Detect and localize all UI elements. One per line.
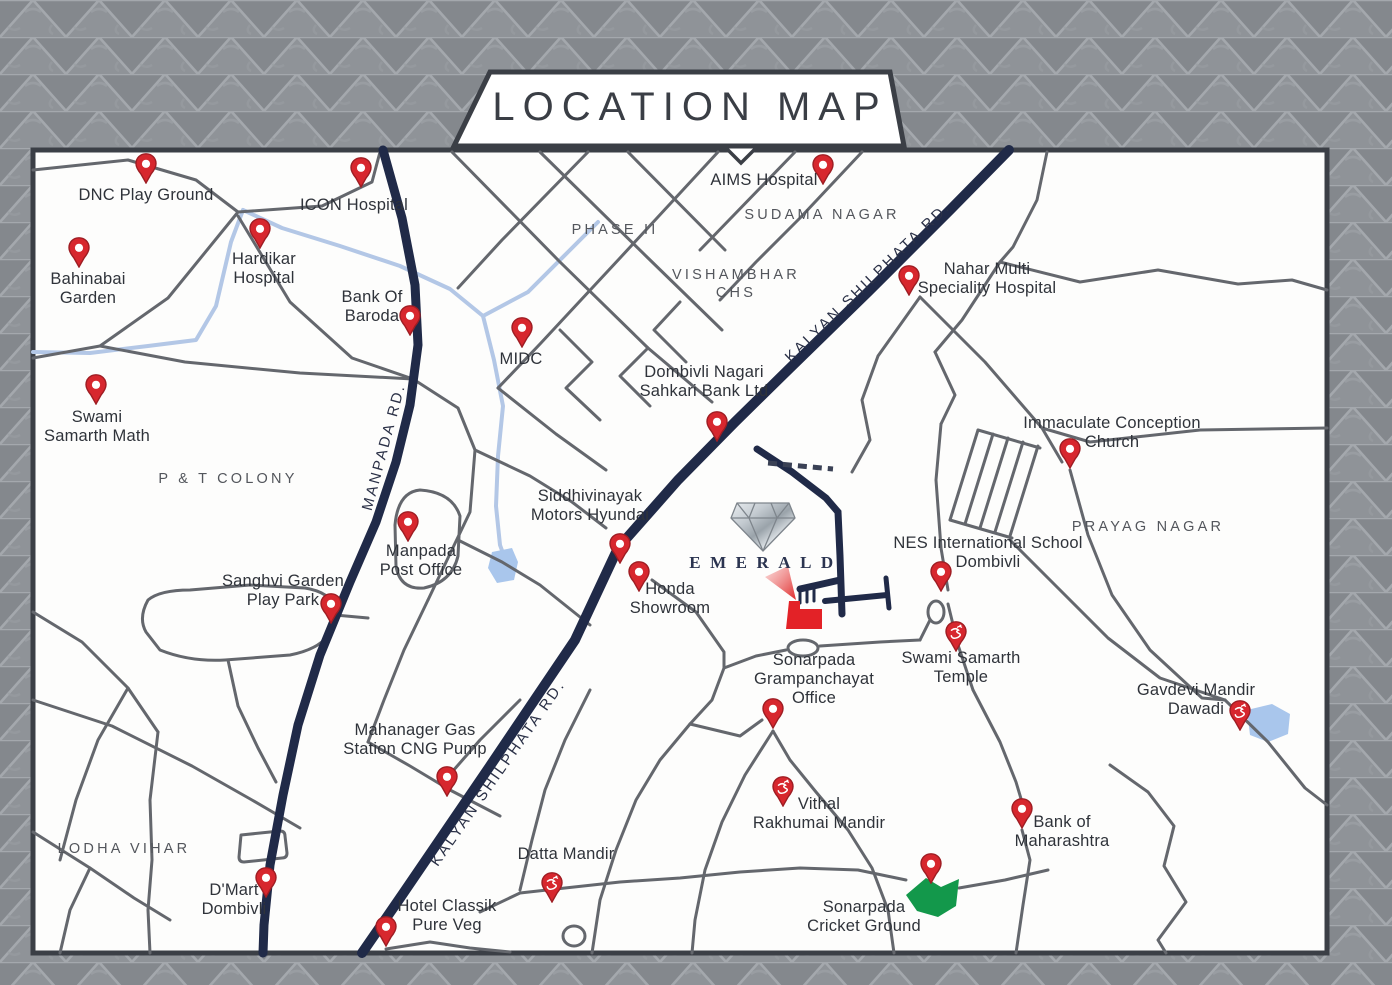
poi-label-swami-samarth-math: SwamiSamarth Math (44, 408, 150, 446)
map-canvas (0, 0, 1392, 985)
poi-label-swami-samarth-temple: Swami SamarthTemple (901, 649, 1020, 687)
road-loop (928, 601, 944, 623)
poi-label-midc: MIDC (500, 350, 543, 369)
poi-label-aims-hospital: AIMS Hospital (710, 171, 817, 190)
poi-label-cricket-ground: SonarpadaCricket Ground (807, 898, 921, 936)
poi-label-icon-hospital: ICON Hospital (300, 196, 408, 215)
poi-label-immaculate-church: Immaculate ConceptionChurch (1023, 414, 1201, 452)
poi-label-datta-mandir: Datta Mandir (518, 845, 615, 864)
poi-label-bank-of-maharashtra: Bank ofMaharashtra (1015, 813, 1110, 851)
road-loop (563, 926, 585, 946)
location-map-poster: LOCATION MAP EMERALD PHASE II SUDAMA NAG… (0, 0, 1392, 985)
poi-label-bahinabai-garden: BahinabaiGarden (50, 270, 125, 308)
poi-label-hardikar-hospital: HardikarHospital (232, 250, 296, 288)
area-label-lodha-vihar: LODHA VIHAR (58, 840, 191, 858)
poi-label-dmart: D'MartDombivli (202, 881, 267, 919)
area-label-phase2: PHASE II (572, 221, 659, 239)
poi-label-vithal-rakhumai: VithalRakhumai Mandir (753, 795, 885, 833)
poi-label-sonarpada-grampanchayat: SonarpadaGrampanchayatOffice (754, 651, 874, 708)
area-label-prayag-nagar: PRAYAG NAGAR (1072, 518, 1224, 536)
project-name: EMERALD (689, 553, 842, 573)
poi-label-honda-showroom: HondaShowroom (630, 580, 710, 618)
page-title: LOCATION MAP (492, 85, 887, 129)
area-label-pt-colony: P & T COLONY (158, 470, 297, 488)
poi-label-nahar-multi: Nahar MultiSpeciality Hospital (918, 260, 1057, 298)
poi-label-dnc-play-ground: DNC Play Ground (78, 186, 213, 205)
area-label-sudama-nagar: SUDAMA NAGAR (744, 206, 899, 224)
poi-label-gavdevi-mandir: Gavdevi MandirDawadi (1137, 681, 1255, 719)
poi-label-manpada-post-office: ManpadaPost Office (380, 542, 463, 580)
poi-label-bank-of-baroda: Bank OfBaroda (341, 288, 402, 326)
poi-label-sanghvi-garden: Sanghvi GardenPlay Park (222, 572, 344, 610)
area-label-vishambhar-chs: VISHAMBHAR CHS (672, 266, 800, 302)
poi-label-hotel-classik: Hotel ClassikPure Veg (398, 897, 497, 935)
poi-label-nes-school: NES International SchoolDombivli (893, 534, 1082, 572)
poi-label-siddhivinayak: SiddhivinayakMotors Hyundai (531, 487, 649, 525)
poi-label-mahanager-gas: Mahanager GasStation CNG Pump (343, 721, 487, 759)
poi-label-dombivli-nagari-bank: Dombivli NagariSahkari Bank Ltd (640, 363, 769, 401)
